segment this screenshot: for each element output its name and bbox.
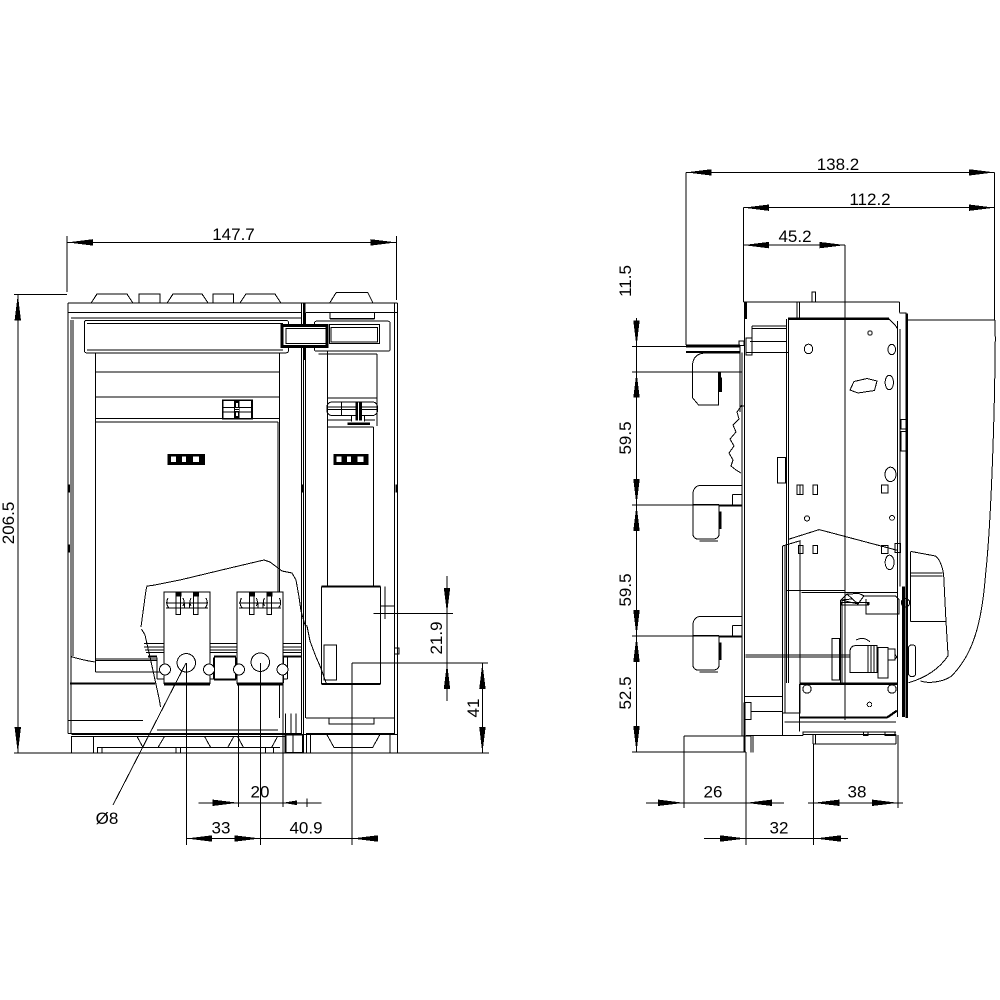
svg-text:40.9: 40.9	[289, 819, 322, 838]
svg-text:112.2: 112.2	[849, 190, 890, 209]
svg-text:138.2: 138.2	[817, 155, 860, 174]
svg-text:38: 38	[848, 783, 867, 802]
svg-text:21.9: 21.9	[427, 621, 446, 654]
svg-text:59.5: 59.5	[616, 573, 635, 606]
svg-text:33: 33	[212, 819, 231, 838]
svg-text:41: 41	[464, 699, 483, 718]
svg-text:206.5: 206.5	[0, 502, 18, 545]
svg-text:20: 20	[251, 783, 270, 802]
svg-text:45.2: 45.2	[778, 227, 811, 246]
svg-text:32: 32	[770, 819, 789, 838]
svg-text:59.5: 59.5	[616, 421, 635, 454]
svg-text:26: 26	[704, 783, 723, 802]
svg-text:Ø8: Ø8	[96, 809, 119, 828]
svg-text:11.5: 11.5	[616, 265, 635, 297]
svg-text:147.7: 147.7	[212, 225, 255, 244]
svg-text:52.5: 52.5	[616, 676, 635, 709]
